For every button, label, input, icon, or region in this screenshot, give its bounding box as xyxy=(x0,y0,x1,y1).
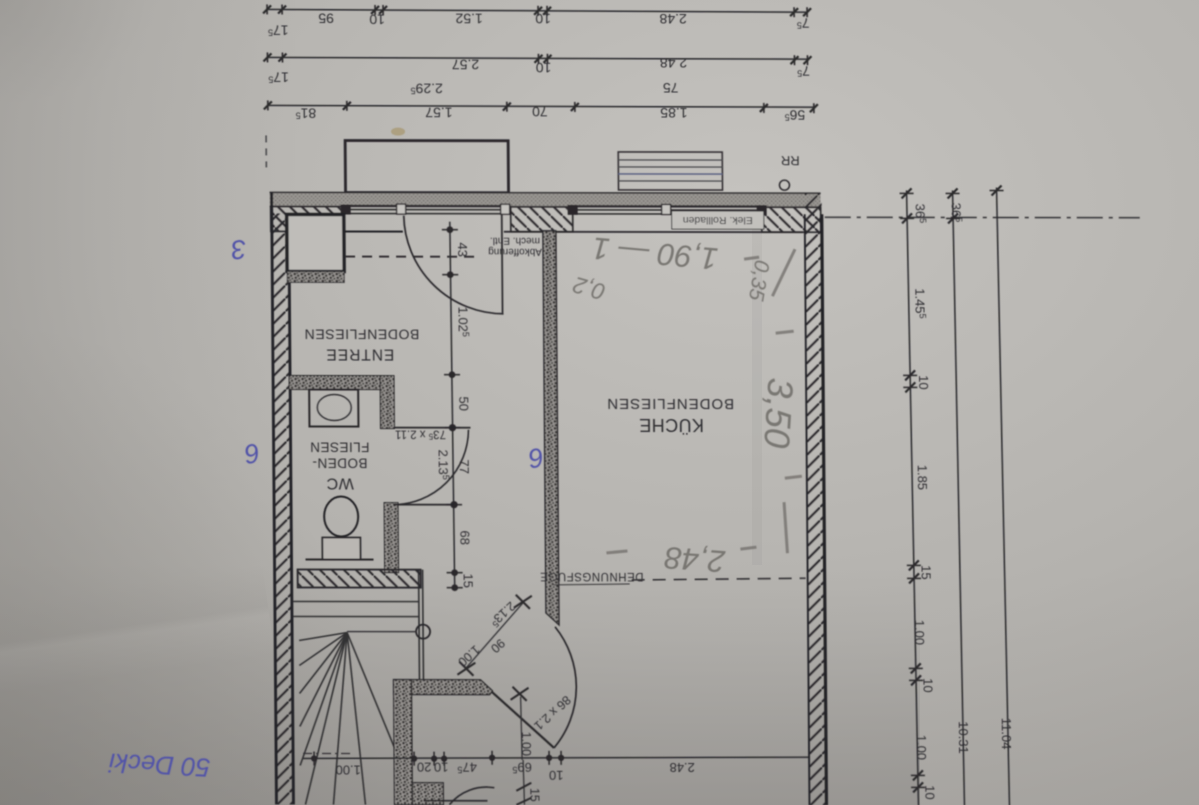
svg-text:1.57: 1.57 xyxy=(425,105,453,121)
svg-text:1.85: 1.85 xyxy=(915,465,930,490)
svg-text:Abkofferungmech. Entl.: Abkofferungmech. Entl. xyxy=(488,235,542,257)
svg-text:BODENFLIESEN: BODENFLIESEN xyxy=(304,326,419,342)
svg-text:68: 68 xyxy=(457,530,472,544)
svg-text:1.52: 1.52 xyxy=(455,11,483,27)
svg-text:1.00: 1.00 xyxy=(912,620,927,645)
svg-text:1.00: 1.00 xyxy=(335,762,360,777)
svg-text:2.48: 2.48 xyxy=(660,55,688,71)
svg-text:10: 10 xyxy=(369,12,385,28)
svg-text:BODENFLIESEN: BODENFLIESEN xyxy=(606,395,734,412)
svg-text:11.04: 11.04 xyxy=(999,718,1014,750)
svg-text:50 Decki: 50 Decki xyxy=(107,747,211,782)
svg-text:50: 50 xyxy=(456,396,471,410)
svg-text:70: 70 xyxy=(532,104,548,120)
svg-text:43: 43 xyxy=(455,242,470,256)
svg-text:2,48: 2,48 xyxy=(663,540,727,579)
svg-text:10: 10 xyxy=(920,678,935,692)
svg-text:1.00: 1.00 xyxy=(914,735,929,760)
svg-text:10: 10 xyxy=(434,760,449,775)
svg-text:75: 75 xyxy=(663,80,679,96)
svg-text:15: 15 xyxy=(919,565,934,579)
svg-text:1.85: 1.85 xyxy=(660,105,688,121)
svg-text:2.48: 2.48 xyxy=(669,760,694,775)
svg-text:DEHNUNGSFUGE: DEHNUNGSFUGE xyxy=(540,570,644,582)
svg-text:20: 20 xyxy=(417,760,432,775)
svg-text:WC: WC xyxy=(326,474,354,491)
svg-text:10: 10 xyxy=(916,375,931,389)
svg-text:2.48: 2.48 xyxy=(659,11,687,27)
svg-text:735 x 2.11: 735 x 2.11 xyxy=(395,428,446,441)
svg-text:15: 15 xyxy=(461,573,476,587)
svg-text:3: 3 xyxy=(230,234,248,265)
svg-text:2.57: 2.57 xyxy=(452,57,480,73)
svg-text:3,50: 3,50 xyxy=(756,377,801,450)
svg-text:KÜCHE: KÜCHE xyxy=(639,415,704,435)
svg-text:Elek. Rollladen: Elek. Rollladen xyxy=(683,214,753,226)
svg-text:95: 95 xyxy=(318,10,334,26)
svg-text:10: 10 xyxy=(535,11,551,27)
svg-text:FLIESEN: FLIESEN xyxy=(310,439,370,454)
svg-text:ENTREE: ENTREE xyxy=(325,345,394,362)
svg-text:10: 10 xyxy=(535,60,551,76)
svg-text:10: 10 xyxy=(922,785,937,799)
svg-text:BODEN-: BODEN- xyxy=(312,455,368,470)
svg-text:10: 10 xyxy=(549,768,564,783)
svg-text:RR: RR xyxy=(781,153,800,168)
svg-text:10.31: 10.31 xyxy=(956,721,971,754)
